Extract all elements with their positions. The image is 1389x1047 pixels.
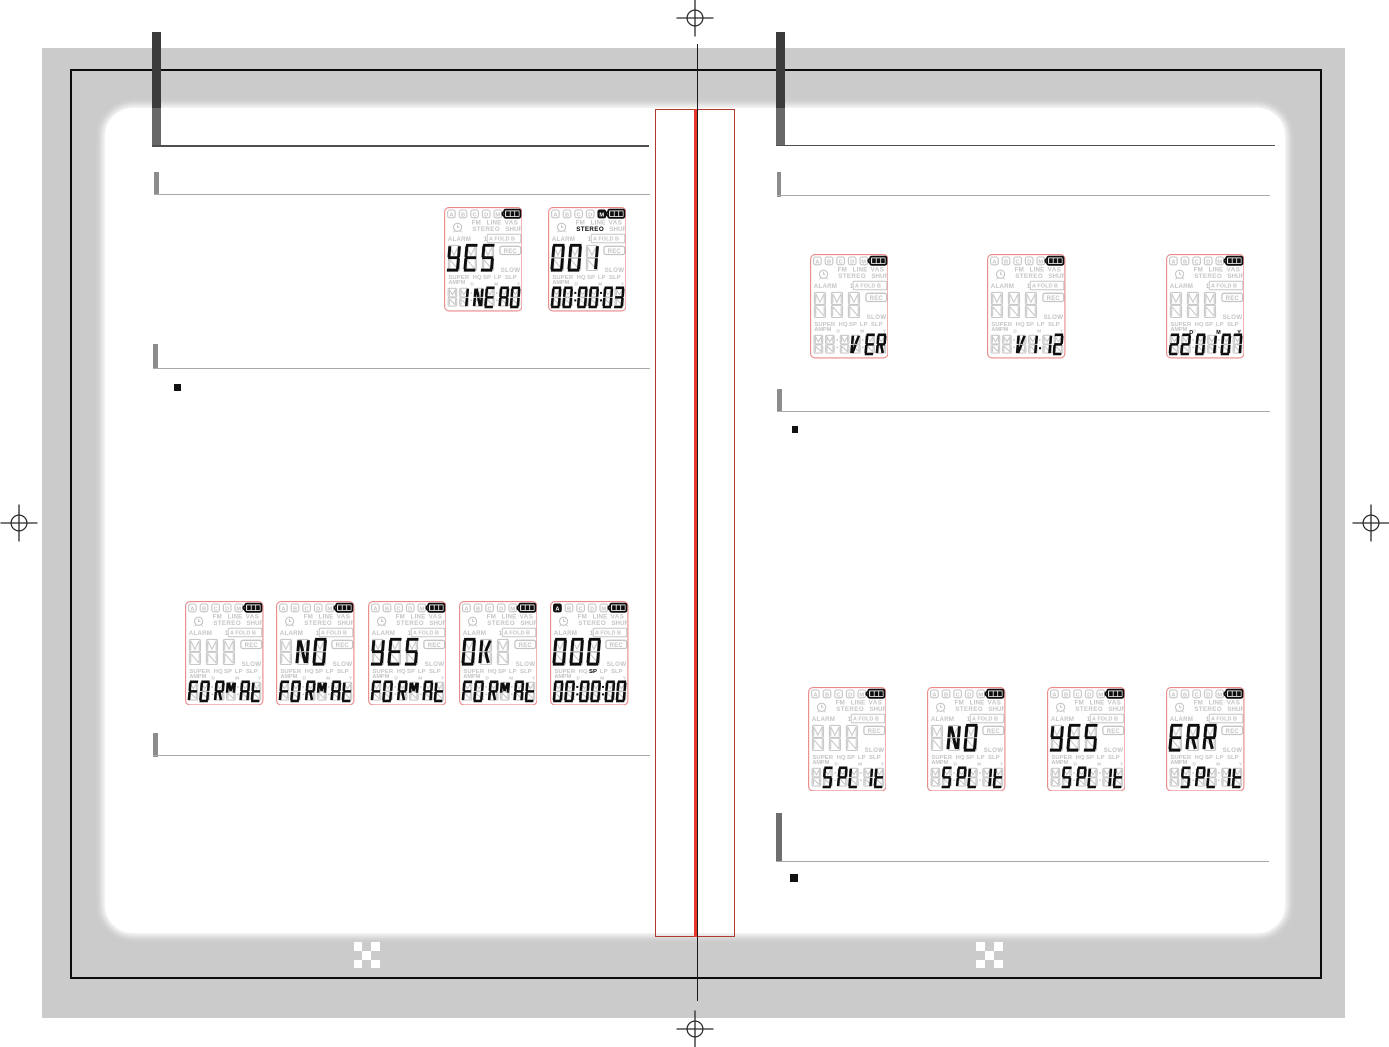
svg-text:SP: SP	[589, 668, 597, 674]
svg-text:A: A	[556, 606, 560, 612]
svg-text:M: M	[1216, 330, 1221, 336]
svg-text:STEREO: STEREO	[576, 226, 604, 233]
svg-text:Y: Y	[1237, 330, 1241, 336]
svg-text:D: D	[1189, 330, 1193, 336]
svg-text:M: M	[599, 213, 604, 219]
